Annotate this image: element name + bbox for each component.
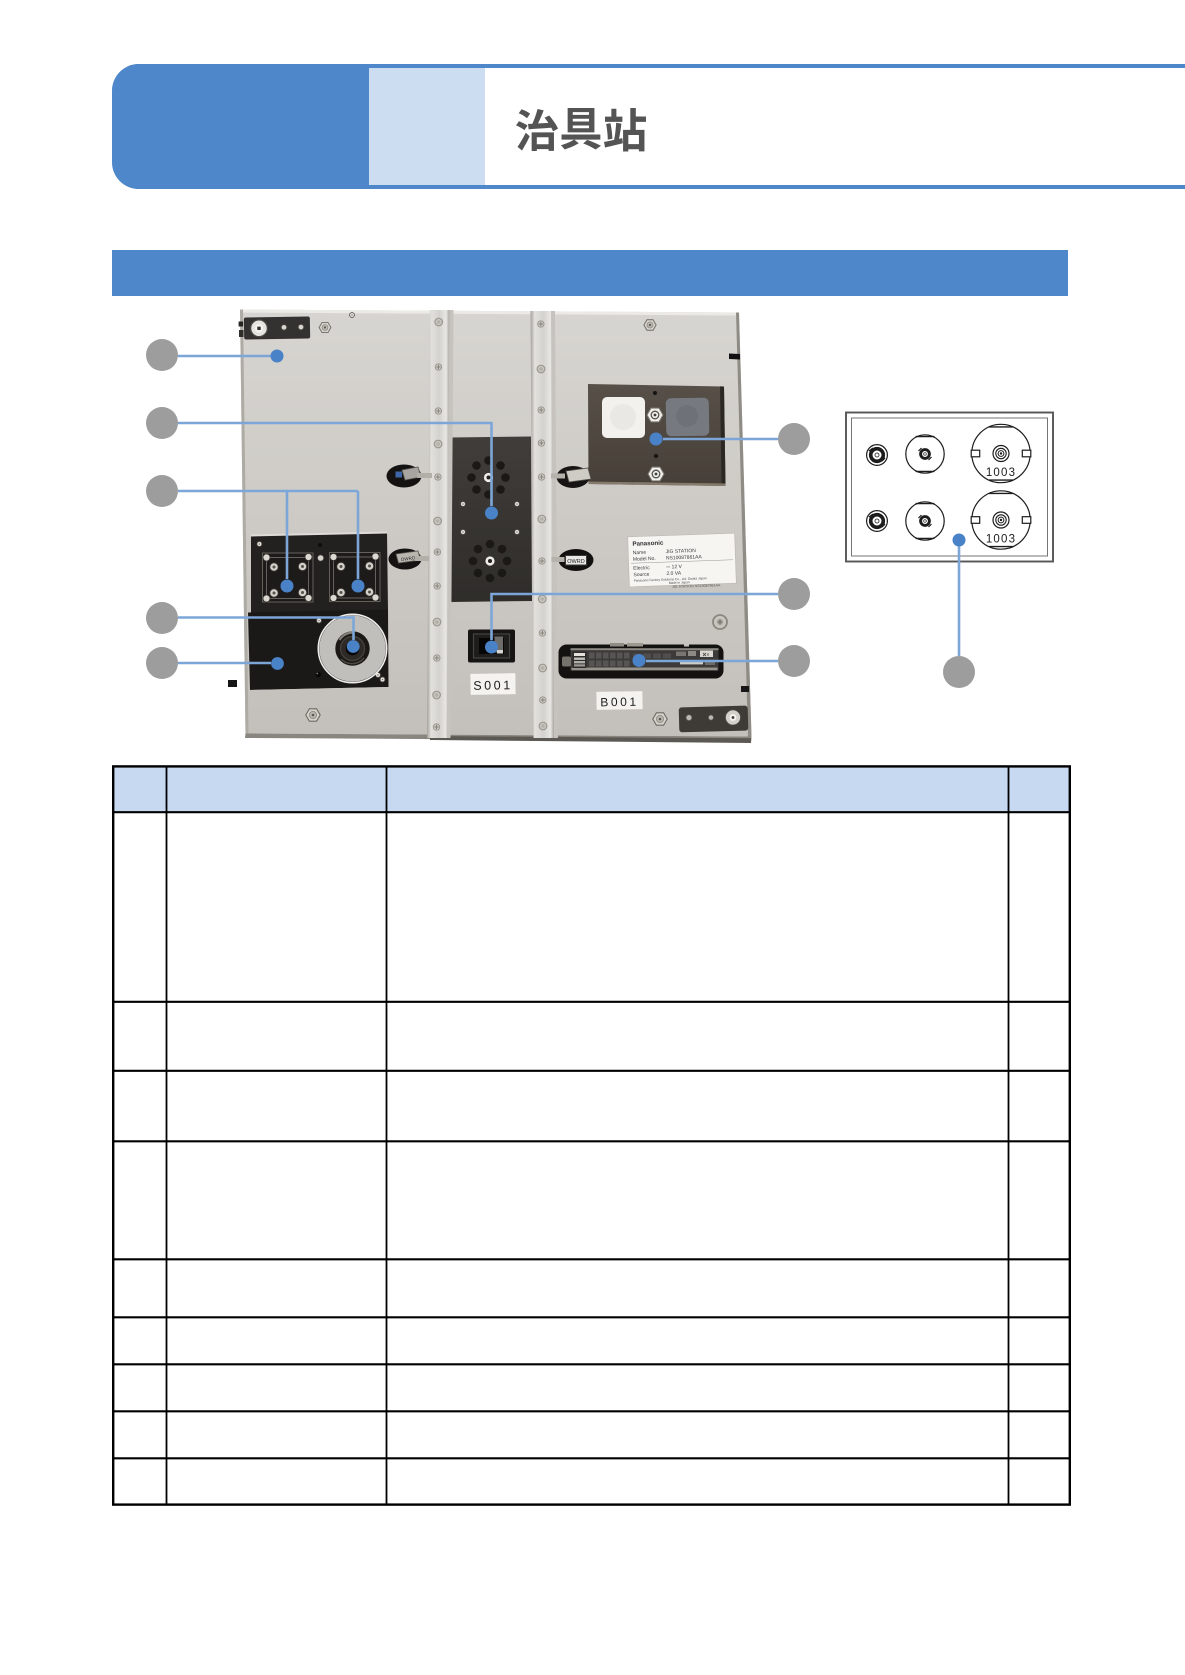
svg-text:S001: S001	[473, 678, 513, 693]
svg-text:OWRD: OWRD	[567, 559, 584, 565]
svg-text:Model No.: Model No.	[633, 556, 656, 563]
svg-text:B001: B001	[600, 695, 639, 710]
svg-text:Name: Name	[633, 550, 647, 556]
svg-text:1003: 1003	[986, 467, 1016, 479]
svg-text:Panasonic: Panasonic	[632, 540, 664, 548]
svg-text:Electric: Electric	[633, 565, 650, 572]
svg-text:⎓ 12 V: ⎓ 12 V	[666, 564, 683, 571]
svg-text:NS10087861AA: NS10087861AA	[666, 554, 703, 561]
svg-text:2.0 VA: 2.0 VA	[666, 571, 682, 578]
svg-text:Source: Source	[633, 572, 649, 579]
svg-text:1003: 1003	[986, 534, 1016, 546]
